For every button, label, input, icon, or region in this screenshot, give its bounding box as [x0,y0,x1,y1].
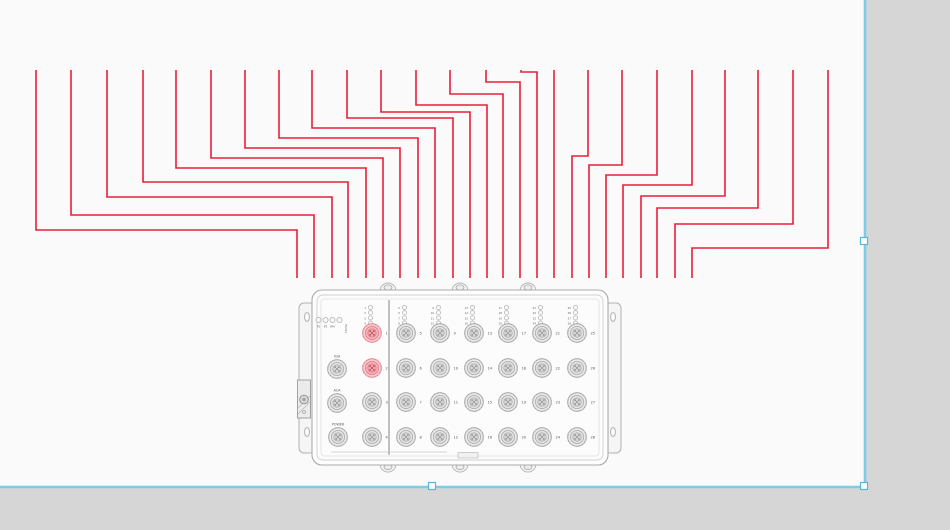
port-pin [437,434,439,436]
housing-inner [317,295,603,460]
channel-led-number-17: 17 [499,306,503,310]
port-connector-15[interactable] [465,393,484,412]
port-pin [338,400,340,402]
port-connector-4[interactable] [363,428,382,447]
port-pin [471,334,473,336]
port-pin [335,438,337,440]
channel-led-6 [402,311,406,315]
port-pin [369,334,371,336]
port-pin [369,330,371,332]
port-pin [437,330,439,332]
port-connector-7[interactable] [397,393,416,412]
status-led-fault [337,317,342,322]
port-pin [539,334,541,336]
port-pin [475,369,477,371]
port-pin [403,365,405,367]
channel-led-number-27: 27 [568,316,572,320]
status-led-label: P2 [324,325,328,329]
port-pin [509,434,511,436]
port-pin [441,438,443,440]
port-connector-22[interactable] [533,359,552,378]
port-pin [334,400,336,402]
port-pin [475,438,477,440]
port-number-17: 17 [522,332,527,336]
port-connector-1[interactable] [363,324,382,343]
port-pin [373,330,375,332]
channel-led-19 [504,316,508,320]
port-pin [403,403,405,405]
port-connector-3[interactable] [363,393,382,412]
port-pin [471,403,473,405]
connector-power[interactable] [329,428,348,447]
port-number-24: 24 [556,436,561,440]
port-pin [441,334,443,336]
port-pin [509,403,511,405]
channel-led-number-26: 26 [568,311,572,315]
status-led-label: P1 [317,325,321,329]
port-connector-26[interactable] [568,359,587,378]
channel-led-number-16: 16 [465,322,469,326]
port-pin [576,401,578,403]
port-pin [441,434,443,436]
mount-hole [611,428,616,437]
channel-led-23 [538,316,542,320]
port-pin [539,434,541,436]
port-pin [441,403,443,405]
port-connector-9[interactable] [431,324,450,343]
port-pin [539,330,541,332]
mount-hole [305,313,310,322]
port-pin [539,365,541,367]
port-pin [337,436,339,438]
port-pin [578,438,580,440]
port-pin [373,403,375,405]
channel-led-number-24: 24 [533,322,537,326]
port-pin [576,436,578,438]
port-connector-2[interactable] [363,359,382,378]
port-number-12: 12 [454,436,459,440]
port-pin [338,404,340,406]
port-pin [407,434,409,436]
port-connector-6[interactable] [397,359,416,378]
port-pin [334,366,336,368]
port-pin [475,399,477,401]
port-pin [403,438,405,440]
status-led-p2 [323,317,328,322]
channel-led-25 [573,305,577,309]
port-number-7: 7 [420,401,422,405]
channel-led-number-18: 18 [499,311,503,315]
side-latch [298,380,311,418]
port-number-5: 5 [420,332,422,336]
channel-led-26 [573,311,577,315]
channel-led-number-25: 25 [568,306,572,310]
port-pin [505,403,507,405]
channel-led-number-8: 8 [398,322,400,326]
channel-led-number-1: 1 [364,306,366,310]
port-pin [471,369,473,371]
port-pin [541,332,543,334]
port-pin [334,404,336,406]
port-connector-24[interactable] [533,428,552,447]
port-pin [475,365,477,367]
channel-led-number-10: 10 [431,311,435,315]
port-pin [471,330,473,332]
port-pin [543,438,545,440]
port-pin [371,367,373,369]
channel-led-number-20: 20 [499,322,503,326]
port-pin [407,330,409,332]
port-pin [407,399,409,401]
port-pin [437,365,439,367]
port-pin [373,438,375,440]
port-pin [574,434,576,436]
port-pin [578,330,580,332]
port-number-16: 16 [488,436,493,440]
port-pin [439,436,441,438]
port-pin [403,334,405,336]
port-pin [574,403,576,405]
status-led-rm [330,317,335,322]
port-pin [541,367,543,369]
port-number-23: 23 [556,401,561,405]
diagram-viewport[interactable]: P1 P2 RM FAULT X2A ACA POWER 12341234567… [0,0,950,530]
port-pin [339,434,341,436]
port-pin [369,434,371,436]
channel-led-number-5: 5 [398,306,400,310]
channel-led-11 [436,316,440,320]
port-pin [439,401,441,403]
channel-led-22 [538,311,542,315]
port-number-2: 2 [386,367,388,371]
port-number-26: 26 [591,367,596,371]
port-number-27: 27 [591,401,596,405]
port-pin [505,399,507,401]
port-connector-17[interactable] [499,324,518,343]
port-number-22: 22 [556,367,561,371]
port-pin [373,399,375,401]
channel-led-number-4: 4 [364,322,366,326]
channel-led-number-15: 15 [465,316,469,320]
status-led-label-fault: FAULT [344,325,348,334]
channel-led-number-22: 22 [533,311,537,315]
port-connector-21[interactable] [533,324,552,343]
selection-handle-bottom-right[interactable] [861,483,868,490]
port-pin [441,365,443,367]
port-pin [576,332,578,334]
port-pin [371,401,373,403]
channel-led-number-14: 14 [465,311,469,315]
port-label-x2a: X2A [334,355,341,359]
port-pin [539,403,541,405]
port-connector-28[interactable] [568,428,587,447]
channel-led-27 [573,316,577,320]
port-pin [539,369,541,371]
port-number-3: 3 [386,401,388,405]
port-pin [509,399,511,401]
port-number-14: 14 [488,367,493,371]
port-pin [407,369,409,371]
port-pin [578,399,580,401]
port-pin [471,434,473,436]
port-pin [473,436,475,438]
bottom-slot [458,453,478,459]
port-pin [403,330,405,332]
port-pin [441,330,443,332]
port-pin [437,399,439,401]
port-number-28: 28 [591,436,596,440]
port-pin [509,369,511,371]
status-led-p1 [316,317,321,322]
port-pin [473,332,475,334]
port-connector-27[interactable] [568,393,587,412]
port-pin [578,434,580,436]
port-number-13: 13 [488,332,493,336]
port-pin [543,330,545,332]
port-pin [576,367,578,369]
port-pin [578,369,580,371]
channel-led-number-28: 28 [568,322,572,326]
design-canvas[interactable]: P1 P2 RM FAULT X2A ACA POWER 12341234567… [0,0,950,530]
port-pin [403,369,405,371]
channel-led-number-7: 7 [398,316,400,320]
port-pin [403,399,405,401]
port-number-11: 11 [454,401,459,405]
io-module-device[interactable]: P1 P2 RM FAULT X2A ACA POWER 12341234567… [298,283,622,472]
port-pin [369,365,371,367]
port-number-21: 21 [556,332,561,336]
port-connector-10[interactable] [431,359,450,378]
port-pin [369,403,371,405]
port-pin [369,369,371,371]
channel-led-2 [368,311,372,315]
port-connector-14[interactable] [465,359,484,378]
channel-led-number-23: 23 [533,316,537,320]
port-pin [437,334,439,336]
port-pin [505,334,507,336]
port-pin [475,434,477,436]
port-pin [539,438,541,440]
port-pin [471,438,473,440]
port-number-10: 10 [454,367,459,371]
port-pin [574,330,576,332]
connector-x2a[interactable] [328,360,347,379]
channel-led-21 [538,305,542,309]
port-pin [336,368,338,370]
channel-led-14 [470,311,474,315]
port-pin [543,399,545,401]
connector-aca[interactable] [328,394,347,413]
channel-led-number-11: 11 [431,316,435,320]
port-pin [371,332,373,334]
port-pin [475,334,477,336]
channel-led-15 [470,316,474,320]
channel-led-1 [368,305,372,309]
port-pin [338,366,340,368]
port-pin [543,403,545,405]
port-number-25: 25 [591,332,596,336]
port-pin [505,365,507,367]
port-connector-11[interactable] [431,393,450,412]
port-pin [439,332,441,334]
port-pin [509,438,511,440]
mount-hole [305,428,310,437]
port-pin [543,369,545,371]
port-connector-13[interactable] [465,324,484,343]
port-pin [471,365,473,367]
port-pin [578,334,580,336]
port-pin [509,330,511,332]
port-pin [578,365,580,367]
port-connector-23[interactable] [533,393,552,412]
port-pin [407,334,409,336]
port-connector-20[interactable] [499,428,518,447]
port-pin [339,438,341,440]
channel-led-7 [402,316,406,320]
port-pin [471,399,473,401]
port-pin [373,434,375,436]
port-label-power: POWER [332,423,345,427]
port-pin [334,370,336,372]
channel-led-number-3: 3 [364,316,366,320]
port-pin [407,403,409,405]
port-pin [437,369,439,371]
port-number-18: 18 [522,367,527,371]
port-connector-18[interactable] [499,359,518,378]
port-pin [336,402,338,404]
port-pin [403,434,405,436]
port-pin [335,434,337,436]
channel-led-number-2: 2 [364,311,366,315]
port-pin [405,436,407,438]
selection-handle-bottom-mid[interactable] [429,483,436,490]
port-pin [338,370,340,372]
port-pin [541,401,543,403]
port-pin [373,369,375,371]
port-pin [441,369,443,371]
port-pin [407,365,409,367]
port-pin [405,401,407,403]
port-number-19: 19 [522,401,527,405]
channel-led-9 [436,305,440,309]
port-pin [574,369,576,371]
channel-led-number-13: 13 [465,306,469,310]
port-connector-5[interactable] [397,324,416,343]
port-pin [473,401,475,403]
port-pin [574,365,576,367]
port-pin [507,332,509,334]
port-pin [437,438,439,440]
selection-handle-mid-right[interactable] [861,238,868,245]
port-pin [507,367,509,369]
channel-led-number-6: 6 [398,311,400,315]
port-connector-8[interactable] [397,428,416,447]
port-connector-16[interactable] [465,428,484,447]
status-led-label: RM [330,325,335,329]
channel-led-3 [368,316,372,320]
channel-led-17 [504,305,508,309]
port-pin [543,365,545,367]
port-pin [437,403,439,405]
port-pin [505,434,507,436]
channel-led-number-19: 19 [499,316,503,320]
port-pin [507,401,509,403]
port-pin [439,367,441,369]
port-pin [373,334,375,336]
port-pin [574,334,576,336]
port-pin [441,399,443,401]
port-pin [574,399,576,401]
port-pin [475,330,477,332]
port-pin [574,438,576,440]
port-number-1: 1 [386,332,388,336]
channel-led-number-9: 9 [432,306,434,310]
port-pin [475,403,477,405]
port-pin [509,334,511,336]
port-pin [505,438,507,440]
port-number-20: 20 [522,436,527,440]
channel-led-10 [436,311,440,315]
port-pin [543,434,545,436]
channel-led-13 [470,305,474,309]
port-pin [405,332,407,334]
port-pin [541,436,543,438]
channel-led-number-12: 12 [431,322,435,326]
port-pin [405,367,407,369]
port-connector-12[interactable] [431,428,450,447]
port-connector-19[interactable] [499,393,518,412]
port-pin [578,403,580,405]
port-pin [543,334,545,336]
port-pin [505,369,507,371]
port-pin [509,365,511,367]
port-pin [371,436,373,438]
channel-led-18 [504,311,508,315]
port-pin [507,436,509,438]
port-label-aca: ACA [334,389,341,393]
channel-led-number-21: 21 [533,306,537,310]
channel-led-5 [402,305,406,309]
port-pin [407,438,409,440]
port-pin [473,367,475,369]
port-connector-25[interactable] [568,324,587,343]
port-number-15: 15 [488,401,493,405]
port-pin [505,330,507,332]
port-pin [373,365,375,367]
port-pin [539,399,541,401]
mount-hole [611,313,616,322]
port-pin [369,438,371,440]
port-pin [369,399,371,401]
